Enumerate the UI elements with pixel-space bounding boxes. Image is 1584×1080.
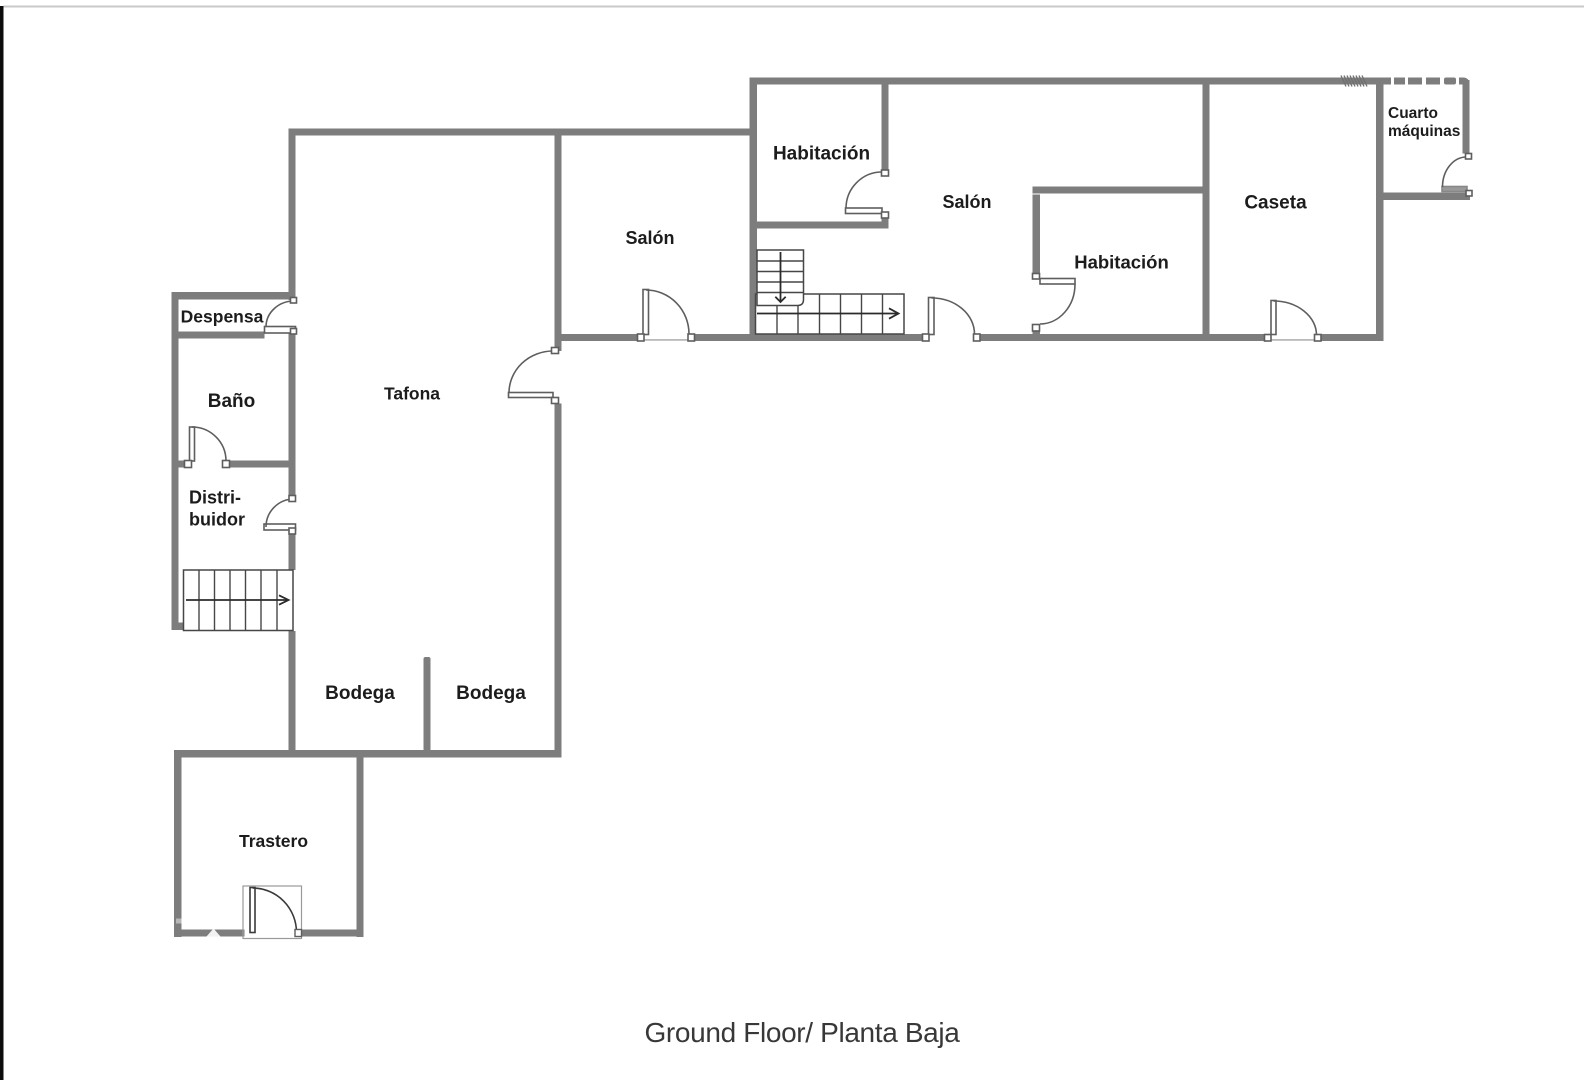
svg-text:Habitación: Habitación: [1074, 252, 1169, 273]
svg-text:Distri-: Distri-: [189, 488, 241, 508]
svg-text:Cuarto: Cuarto: [1388, 105, 1438, 122]
svg-text:Tafona: Tafona: [384, 384, 440, 404]
svg-text:Baño: Baño: [208, 391, 256, 412]
svg-text:Ground Floor/ Planta Baja: Ground Floor/ Planta Baja: [645, 1017, 961, 1048]
svg-text:buidor: buidor: [189, 510, 245, 530]
svg-text:máquinas: máquinas: [1388, 123, 1460, 140]
svg-text:Despensa: Despensa: [181, 307, 264, 327]
svg-text:Caseta: Caseta: [1244, 193, 1307, 214]
svg-text:Salón: Salón: [942, 192, 991, 212]
svg-text:Habitación: Habitación: [773, 144, 870, 165]
svg-text:Bodega: Bodega: [456, 683, 526, 704]
svg-text:Salón: Salón: [625, 228, 674, 248]
svg-text:Bodega: Bodega: [325, 683, 395, 704]
svg-text:Trastero: Trastero: [239, 831, 308, 851]
